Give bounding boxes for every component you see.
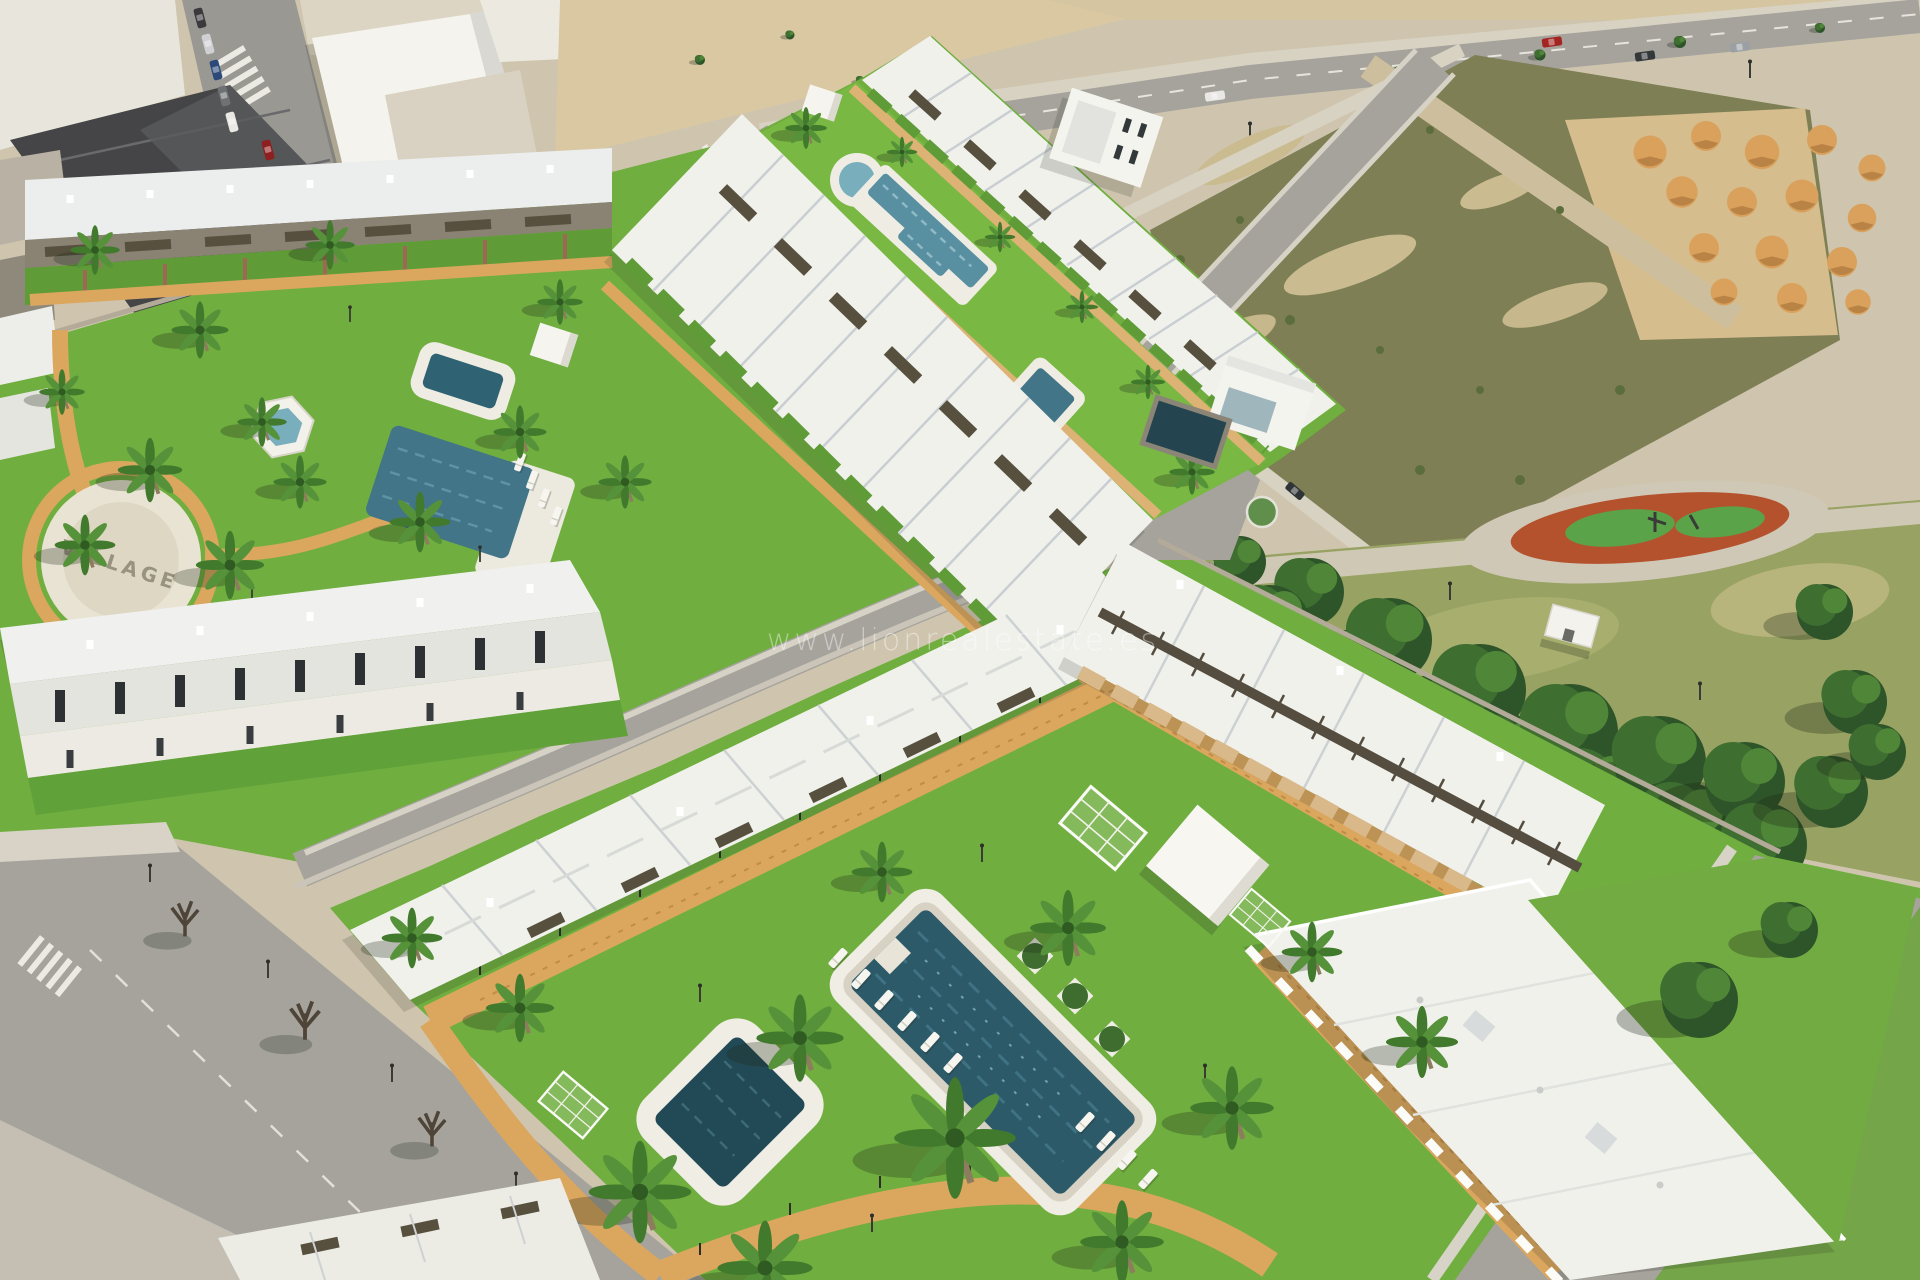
sand-mound [1727,187,1757,217]
sand-mound [1634,136,1667,169]
sand-mound [1859,155,1886,182]
sand-mound [1756,236,1789,269]
sand-mound [1691,121,1721,151]
sand-mound [1807,125,1837,155]
watermark: www.lionrealestate.es [767,623,1159,658]
sand-mound [1845,289,1871,315]
wing-se-ac-unit [1417,997,1424,1004]
wing-se-ac-unit [1657,1182,1664,1189]
sand-mound [1711,279,1738,306]
sand-mound [1786,180,1819,213]
sand-mound [1777,283,1807,313]
sand-mound [1745,135,1780,170]
west-block1 [0,306,60,385]
render-canvas: VILLAGE [0,0,1920,1280]
wing-se-ac-unit [1537,1087,1544,1094]
sand-mound [1666,176,1698,208]
sand-mound [1827,247,1857,277]
aerial-render-scene: VILLAGE [0,0,1920,1280]
sand-mound [1848,204,1877,233]
traffic-island [1247,497,1277,527]
sand-mound [1689,233,1719,263]
